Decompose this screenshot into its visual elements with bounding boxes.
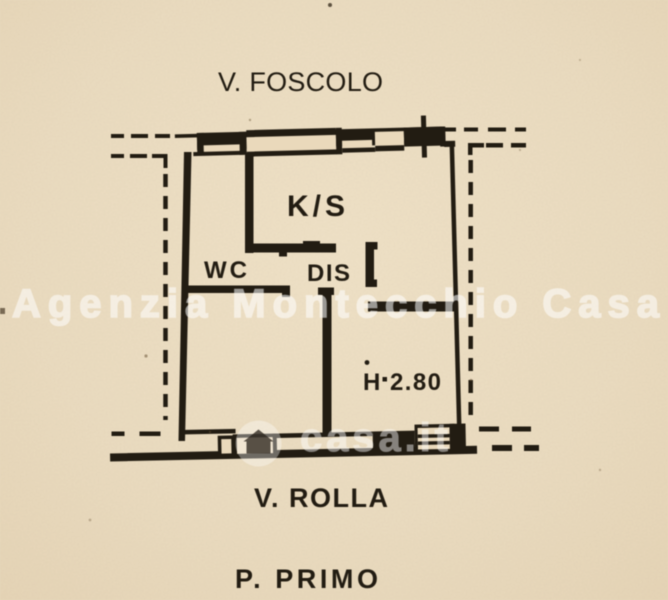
svg-text:casa.it: casa.it — [300, 416, 448, 460]
svg-text:Agenzia Montecchio Casa: Agenzia Montecchio Casa — [12, 282, 660, 326]
svg-text:P. PRIMO: P. PRIMO — [235, 564, 378, 594]
svg-text:K/S: K/S — [287, 190, 345, 223]
svg-text:2.80: 2.80 — [390, 369, 441, 396]
svg-text:V. ROLLA: V. ROLLA — [254, 483, 388, 513]
svg-text:V. FOSCOLO: V. FOSCOLO — [218, 67, 383, 97]
svg-text:H: H — [363, 369, 380, 396]
svg-text:WC: WC — [204, 257, 247, 284]
